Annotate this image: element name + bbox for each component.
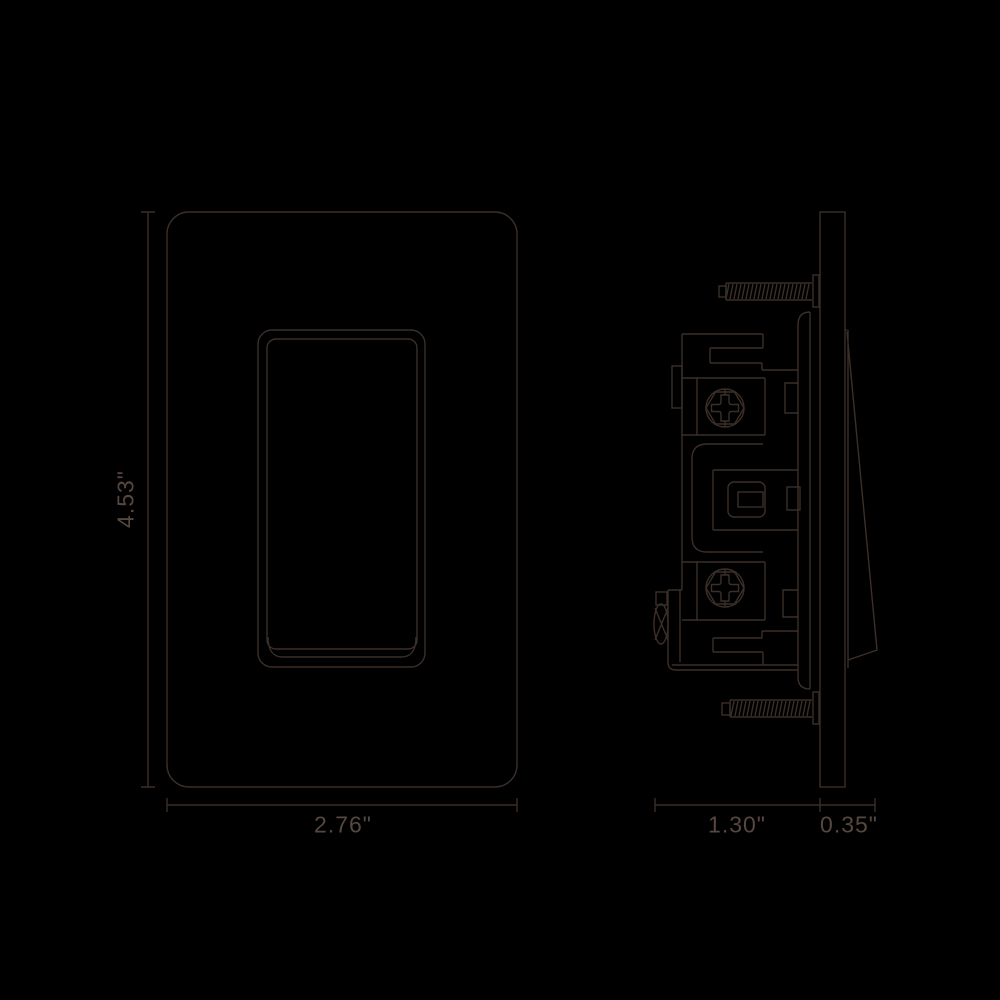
mounting-screw-bottom	[722, 692, 819, 724]
screw-tip	[719, 286, 726, 297]
wire-screw-knurl	[655, 608, 668, 640]
mounting-screw-top	[719, 275, 819, 307]
body-left-tab	[672, 366, 682, 408]
body-right-detail-top	[785, 383, 798, 413]
switch-line-drawing	[0, 0, 1000, 1000]
screw-head	[813, 692, 819, 724]
front-view	[167, 212, 517, 787]
body-center-rect	[713, 470, 798, 530]
body-top-notch	[682, 334, 798, 370]
rocker-paddle-side	[845, 330, 877, 668]
height-dimension-line	[141, 212, 155, 787]
dim-label-depth: 1.30"	[708, 812, 766, 839]
paddle-bottom-lip	[268, 637, 416, 657]
terminal-plate	[682, 562, 765, 620]
wire-screw-step	[656, 592, 667, 605]
wire-screw-side	[654, 592, 668, 644]
dimension-diagram: 4.53" 2.76" 1.30" 0.35"	[0, 0, 1000, 1000]
phillips-cross	[712, 569, 739, 607]
terminal-screw-top	[682, 378, 765, 435]
screw-tip	[722, 703, 730, 715]
body-bottom-edge	[672, 665, 798, 670]
body-center-innermost-rect	[738, 492, 763, 507]
screw-threads	[726, 284, 809, 299]
rocker-opening	[258, 330, 425, 667]
dim-label-height: 4.53"	[113, 470, 140, 528]
body-bottom-notch	[713, 631, 798, 665]
body-right-detail-bottom	[783, 590, 798, 617]
side-view	[654, 212, 877, 787]
wall-plate-side	[820, 212, 845, 787]
dim-label-width: 2.76"	[314, 812, 372, 839]
width-dimension-line	[167, 798, 517, 812]
body-left-edge	[668, 334, 682, 670]
depth-dimension-line	[655, 798, 875, 812]
dim-label-protrusion: 0.35"	[820, 812, 878, 839]
screw-threads	[731, 701, 810, 716]
terminal-screw-bottom	[682, 562, 765, 620]
screw-head	[813, 275, 819, 307]
phillips-cross	[712, 389, 739, 427]
wall-plate-front	[167, 212, 517, 787]
body-center-inner-rect	[728, 482, 765, 517]
rocker-paddle-front	[267, 339, 417, 649]
